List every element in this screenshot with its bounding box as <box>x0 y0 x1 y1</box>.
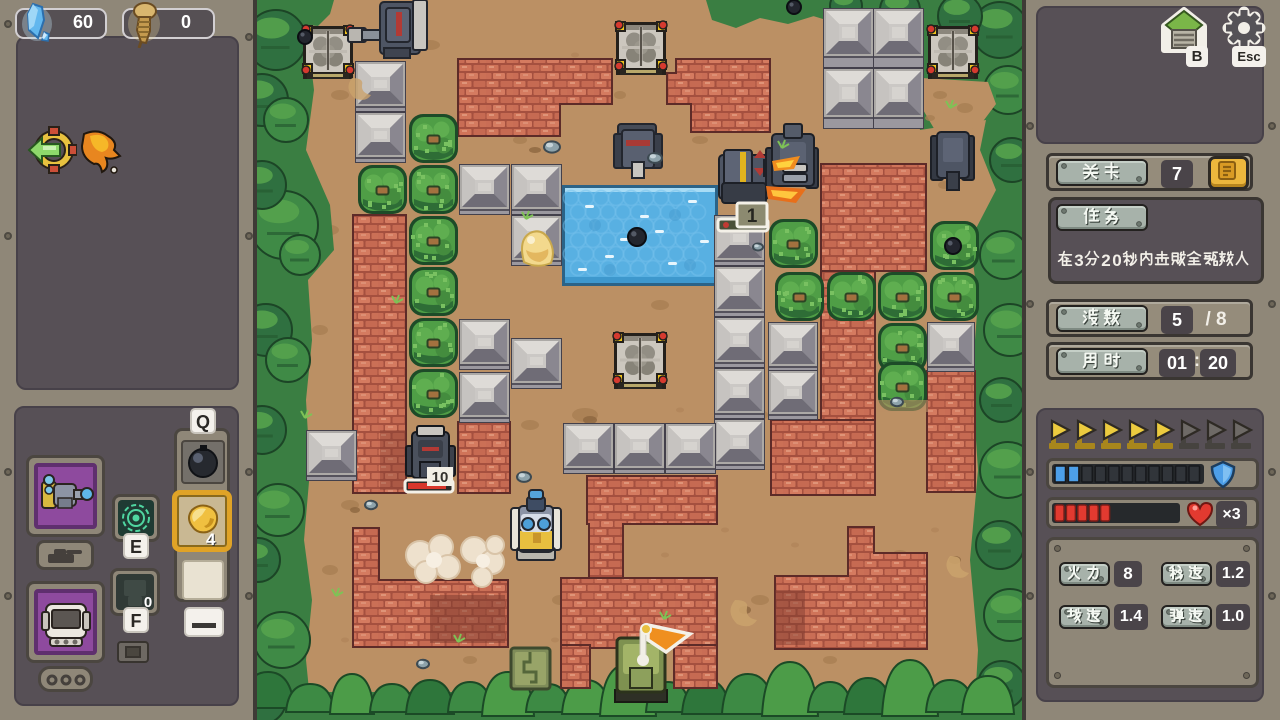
svg-text:3: 3 <box>1074 251 1083 270</box>
svg-text:1: 1 <box>747 206 758 227</box>
svg-text:10: 10 <box>432 469 449 486</box>
svg-text:2: 2 <box>1101 251 1110 270</box>
svg-text:0: 0 <box>1112 251 1121 270</box>
